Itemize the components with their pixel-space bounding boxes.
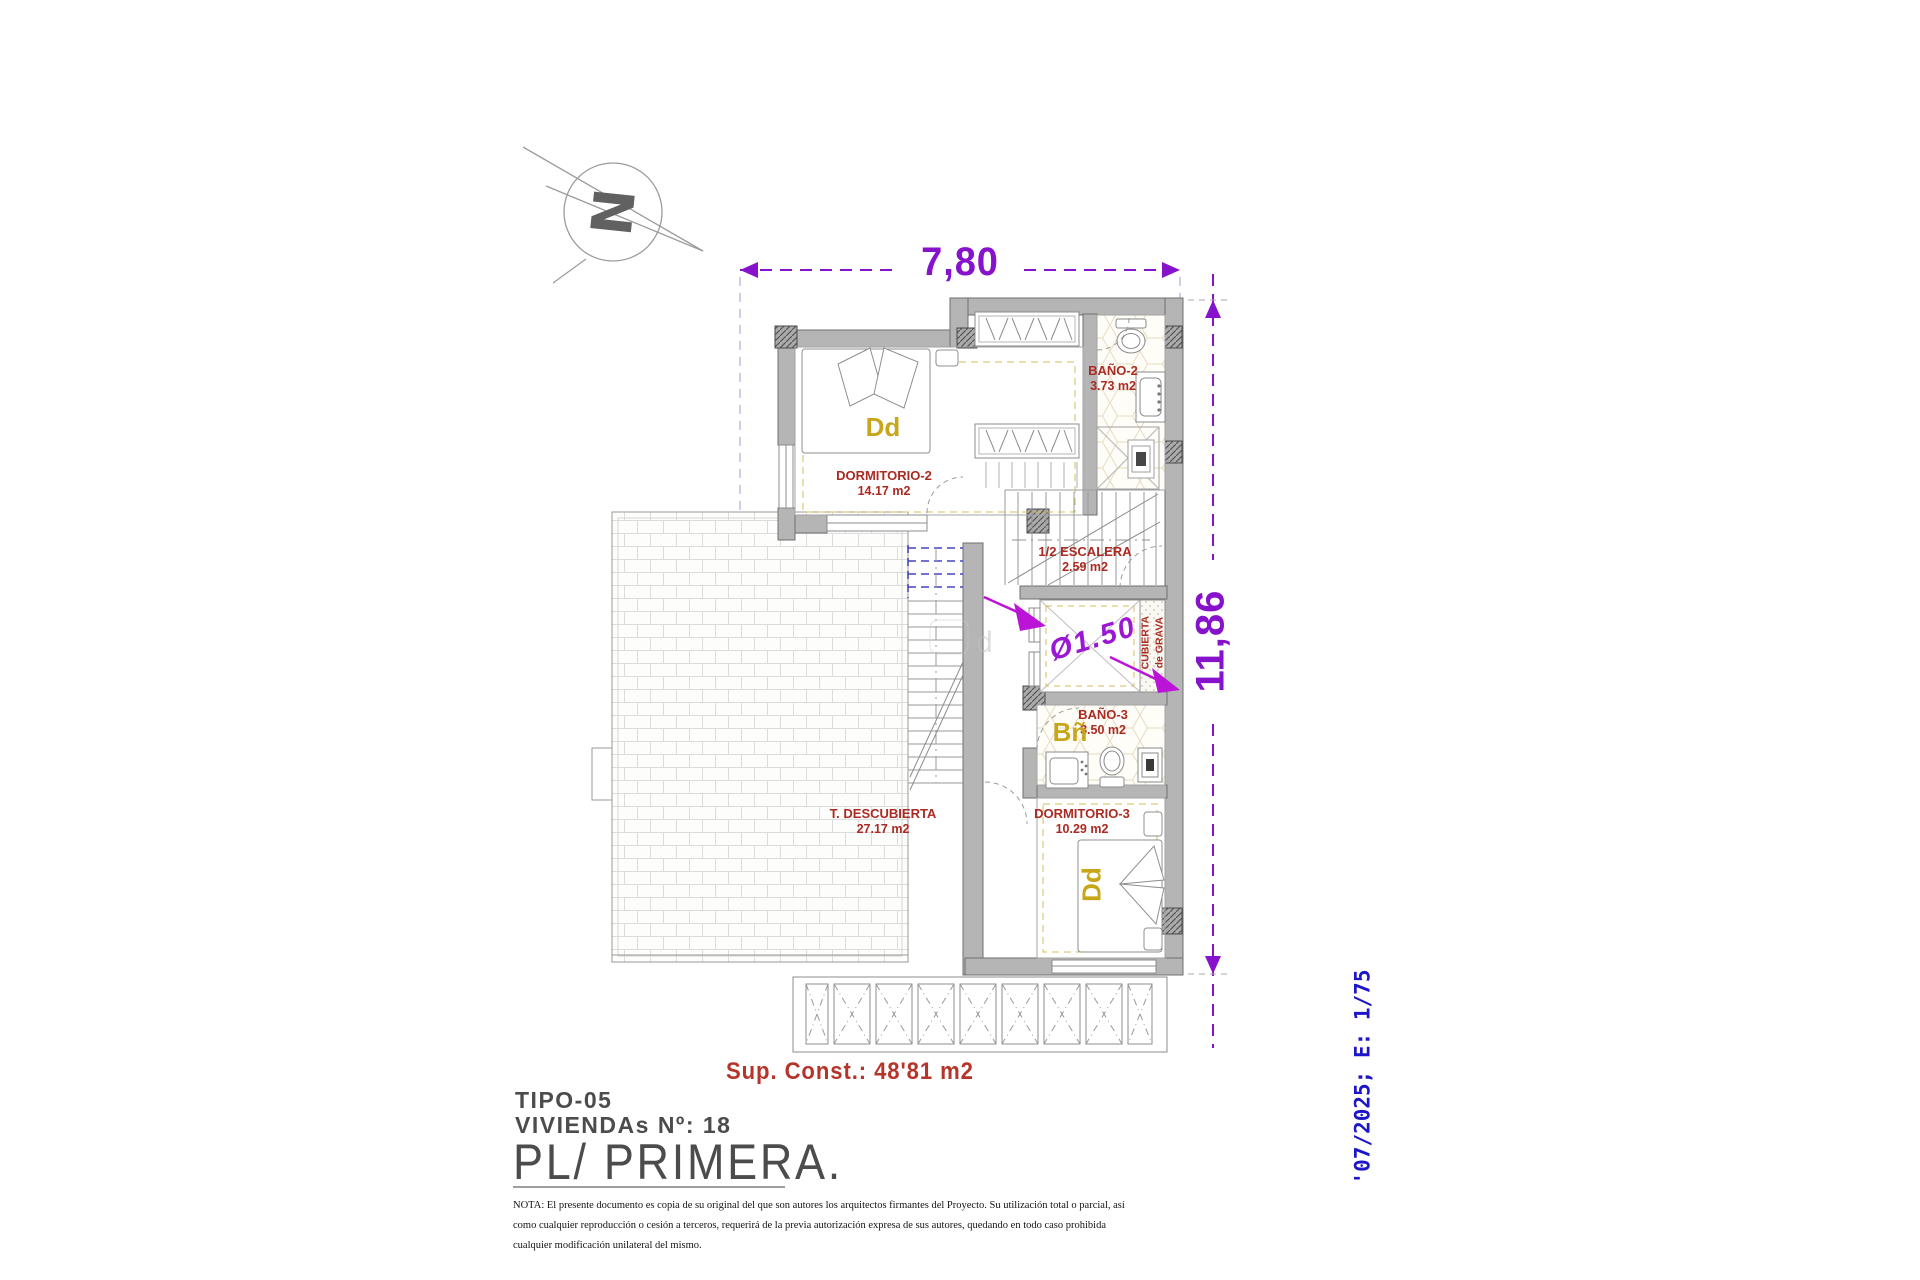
room-area: 27.17 m2 xyxy=(793,822,973,837)
room-area: 10.29 m2 xyxy=(992,822,1172,837)
room-area: 2.59 m2 xyxy=(1005,560,1165,575)
room-name: DORMITORIO-3 xyxy=(992,806,1172,822)
toilet-icon xyxy=(1100,747,1124,787)
room-label-terraza: T. DESCUBIERTA 27.17 m2 xyxy=(793,806,973,837)
terrace xyxy=(592,512,908,962)
title-rule xyxy=(513,1186,785,1188)
date-scale-box: '07/2025; E: 1/75 xyxy=(1256,1062,1468,1092)
room-label-dormitorio3: DORMITORIO-3 10.29 m2 xyxy=(992,806,1172,837)
gravel-label-box: CUBIERTA de GRAVA xyxy=(1110,626,1196,660)
floor-plan-sheet: N xyxy=(0,0,1920,1280)
note-line-3: cualquier modificación unilateral del mi… xyxy=(513,1236,1125,1256)
room-area: 3.73 m2 xyxy=(1063,379,1163,394)
date-scale-label: '07/2025; E: 1/75 xyxy=(1350,970,1374,1185)
built-area-label: Sup. Const.: 48'81 m2 xyxy=(726,1058,974,1086)
bath3-label: Bñ xyxy=(1040,717,1100,748)
dimension-width-label: 7,80 xyxy=(903,240,1017,285)
room-name: 1/2 ESCALERA xyxy=(1005,544,1165,560)
note-line-1: NOTA: El presente documento es copia de … xyxy=(513,1196,1125,1216)
room-label-escalera: 1/2 ESCALERA 2.59 m2 xyxy=(1005,544,1165,575)
bed2-label: Dd xyxy=(853,412,913,443)
floor-plan-drawing: N xyxy=(0,0,1920,1280)
bano2-room xyxy=(1097,315,1165,490)
bed3-label-box: Dd xyxy=(1062,866,1122,902)
copyright-note: NOTA: El presente documento es copia de … xyxy=(513,1196,1125,1256)
room-label-bano2: BAÑO-2 3.73 m2 xyxy=(1063,363,1163,394)
north-letter-icon: N xyxy=(576,185,646,238)
room-name: BAÑO-2 xyxy=(1063,363,1163,379)
louver-strip xyxy=(793,977,1167,1052)
plan-title: PL/ PRIMERA. xyxy=(513,1133,843,1191)
watermark-letter: d xyxy=(976,626,993,659)
room-name: T. DESCUBIERTA xyxy=(793,806,973,822)
room-area: 14.17 m2 xyxy=(794,484,974,499)
gravel-label: CUBIERTA de GRAVA xyxy=(1139,600,1166,686)
note-line-2: como cualquier reproducción o cesión a t… xyxy=(513,1216,1125,1236)
toilet-icon xyxy=(1116,319,1146,353)
bed3-label: Dd xyxy=(1077,854,1108,914)
vanity-icon xyxy=(1046,752,1088,788)
room-name: DORMITORIO-2 xyxy=(794,468,974,484)
room-label-dormitorio2: DORMITORIO-2 14.17 m2 xyxy=(794,468,974,499)
north-compass: N xyxy=(523,147,703,283)
type-label: TIPO-05 xyxy=(515,1087,612,1114)
washer-icon xyxy=(1138,748,1162,782)
